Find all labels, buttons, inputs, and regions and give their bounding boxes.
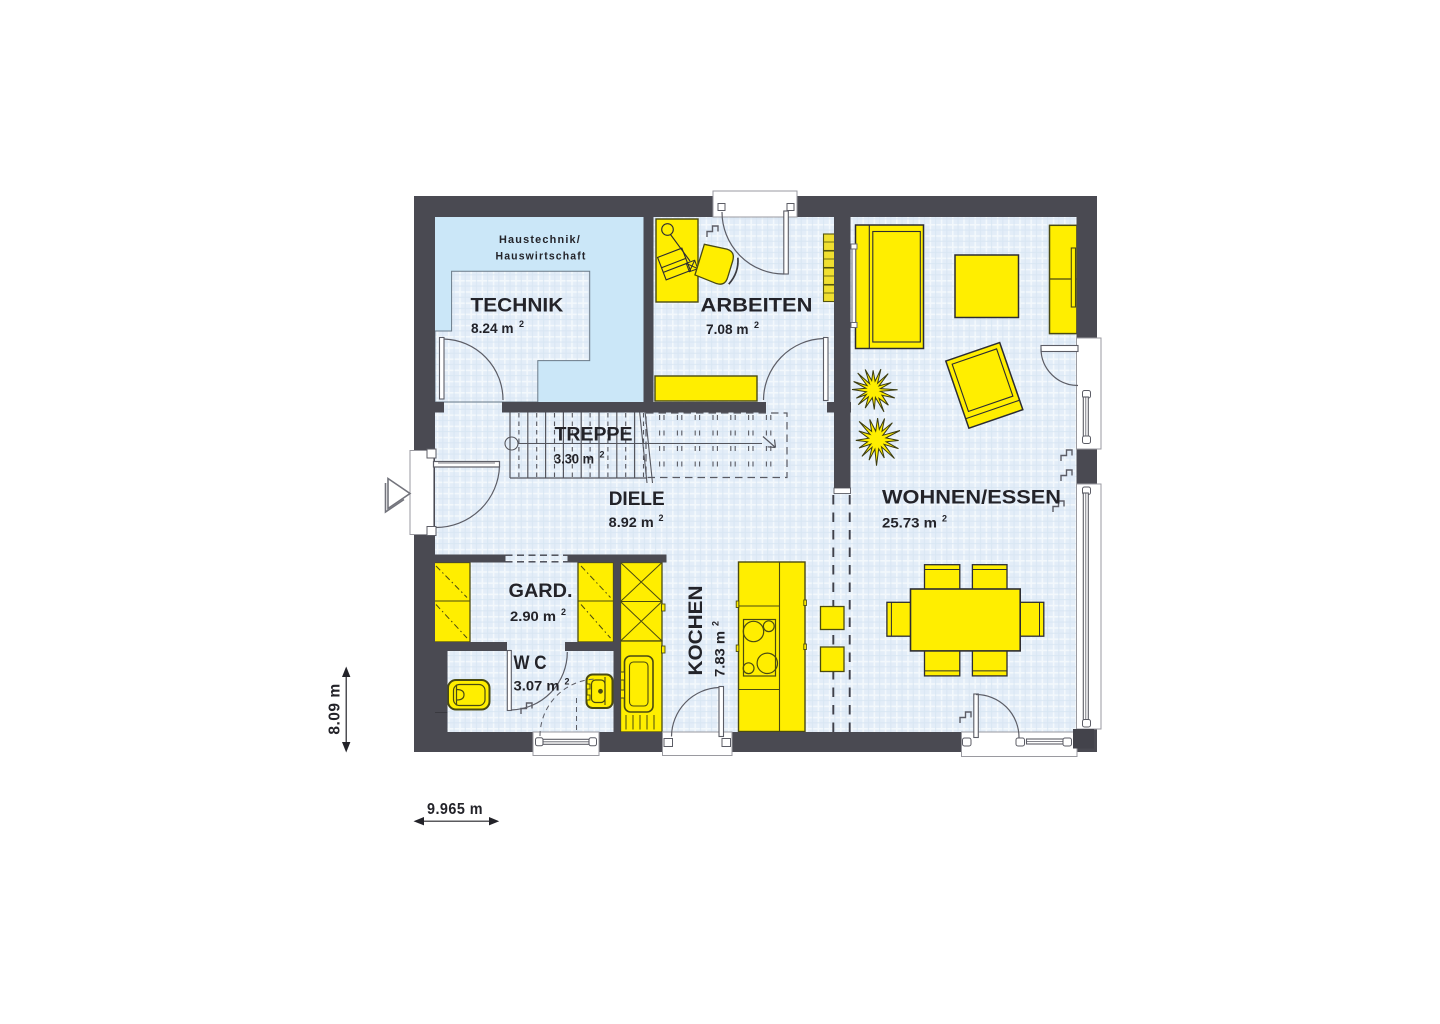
svg-text:TREPPE: TREPPE xyxy=(555,425,633,446)
svg-text:DIELE: DIELE xyxy=(609,489,665,510)
svg-text:ARBEITEN: ARBEITEN xyxy=(701,296,813,317)
svg-text:3.07 m: 3.07 m xyxy=(514,678,560,694)
svg-text:W C: W C xyxy=(514,653,547,674)
svg-text:8.24 m: 8.24 m xyxy=(471,320,514,336)
svg-text:2: 2 xyxy=(754,320,759,330)
svg-text:9.965 m: 9.965 m xyxy=(427,801,483,818)
svg-text:2: 2 xyxy=(600,450,605,460)
svg-text:7.83 m: 7.83 m xyxy=(712,631,728,677)
svg-text:2: 2 xyxy=(942,514,947,524)
svg-text:7.08 m: 7.08 m xyxy=(706,321,749,337)
svg-text:2: 2 xyxy=(711,621,721,626)
svg-text:25.73 m: 25.73 m xyxy=(882,515,937,531)
svg-text:3.30 m: 3.30 m xyxy=(554,451,594,467)
svg-text:8.92 m: 8.92 m xyxy=(609,514,654,530)
svg-text:GARD.: GARD. xyxy=(509,581,573,602)
svg-text:Hauswirtschaft: Hauswirtschaft xyxy=(496,251,587,263)
svg-text:2.90 m: 2.90 m xyxy=(510,608,556,624)
svg-text:2: 2 xyxy=(561,607,566,617)
svg-text:2: 2 xyxy=(659,513,664,523)
svg-text:8.09 m: 8.09 m xyxy=(327,683,344,734)
svg-text:2: 2 xyxy=(519,319,524,329)
svg-text:Haustechnik/: Haustechnik/ xyxy=(499,234,581,246)
svg-text:TECHNIK: TECHNIK xyxy=(471,296,564,317)
svg-text:KOCHEN: KOCHEN xyxy=(686,586,707,676)
svg-text:WOHNEN/ESSEN: WOHNEN/ESSEN xyxy=(882,488,1061,509)
svg-text:2: 2 xyxy=(565,677,570,687)
